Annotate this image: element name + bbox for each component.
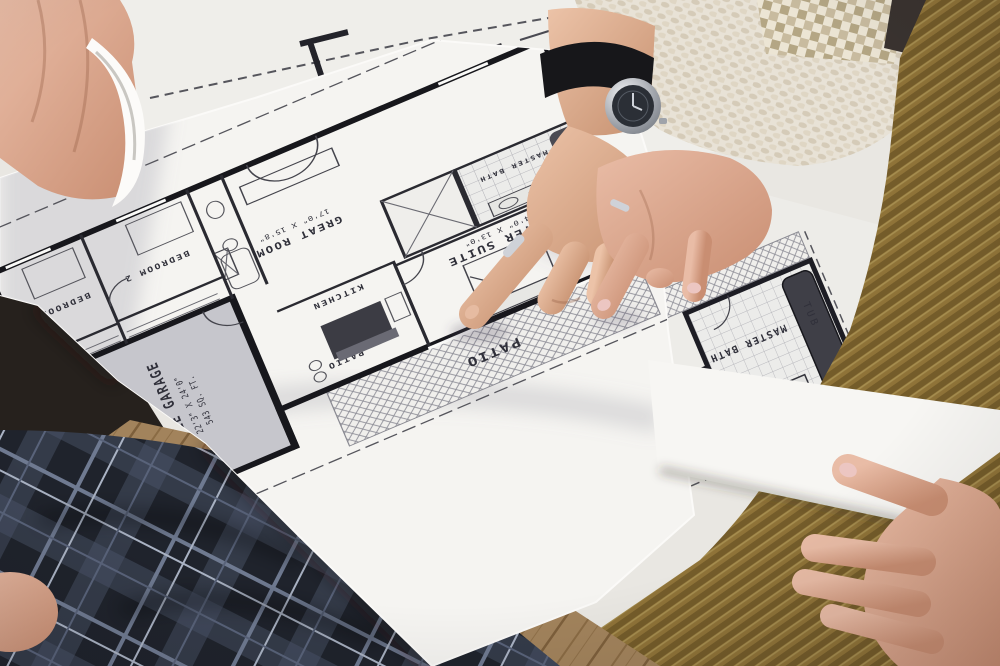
vignette — [0, 0, 1000, 666]
photo-canvas: TUB MASTER BATH — [0, 0, 1000, 666]
photo-scene: TUB MASTER BATH — [0, 0, 1000, 666]
